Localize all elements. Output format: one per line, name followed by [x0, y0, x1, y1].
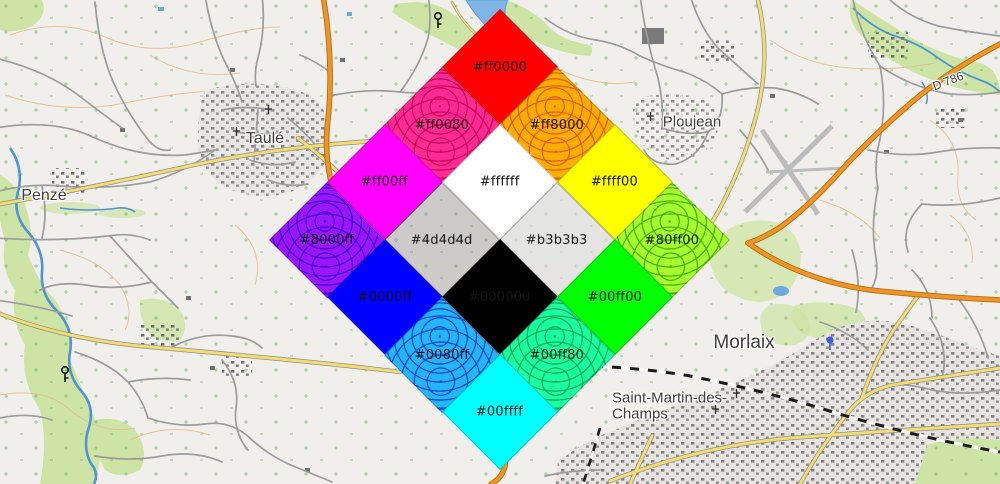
color-tile-label: #0000ff	[358, 290, 413, 305]
color-tile-label: #00ffff	[476, 405, 523, 420]
color-tile-label: #00ff80	[530, 347, 585, 362]
color-tile-label: #ff0080	[415, 117, 470, 132]
color-tile-label: #ff00ff	[361, 175, 408, 190]
color-tile-label: #ffffff	[480, 175, 520, 190]
color-tile-label: #ffff00	[591, 175, 638, 190]
color-tile-label: #80ff00	[645, 232, 700, 247]
color-tile-label: #ff0000	[473, 60, 528, 75]
color-tile-layer: #ff0000#ff0080#ff8000#ff00ff#ffffff#ffff…	[0, 0, 1000, 484]
color-tile-label: #000000	[469, 290, 531, 305]
color-tile-label: #b3b3b3	[527, 232, 589, 247]
color-tile-label: #8000ff	[300, 232, 355, 247]
color-tile-label: #0080ff	[415, 347, 470, 362]
map-viewport[interactable]: TauléPenzéPloujeanMorlaixSaint-Martin-de…	[0, 0, 1000, 484]
color-tile-label: #ff8000	[530, 117, 585, 132]
color-tile-label: #4d4d4d	[412, 232, 474, 247]
color-tile-label: #00ff00	[588, 290, 643, 305]
